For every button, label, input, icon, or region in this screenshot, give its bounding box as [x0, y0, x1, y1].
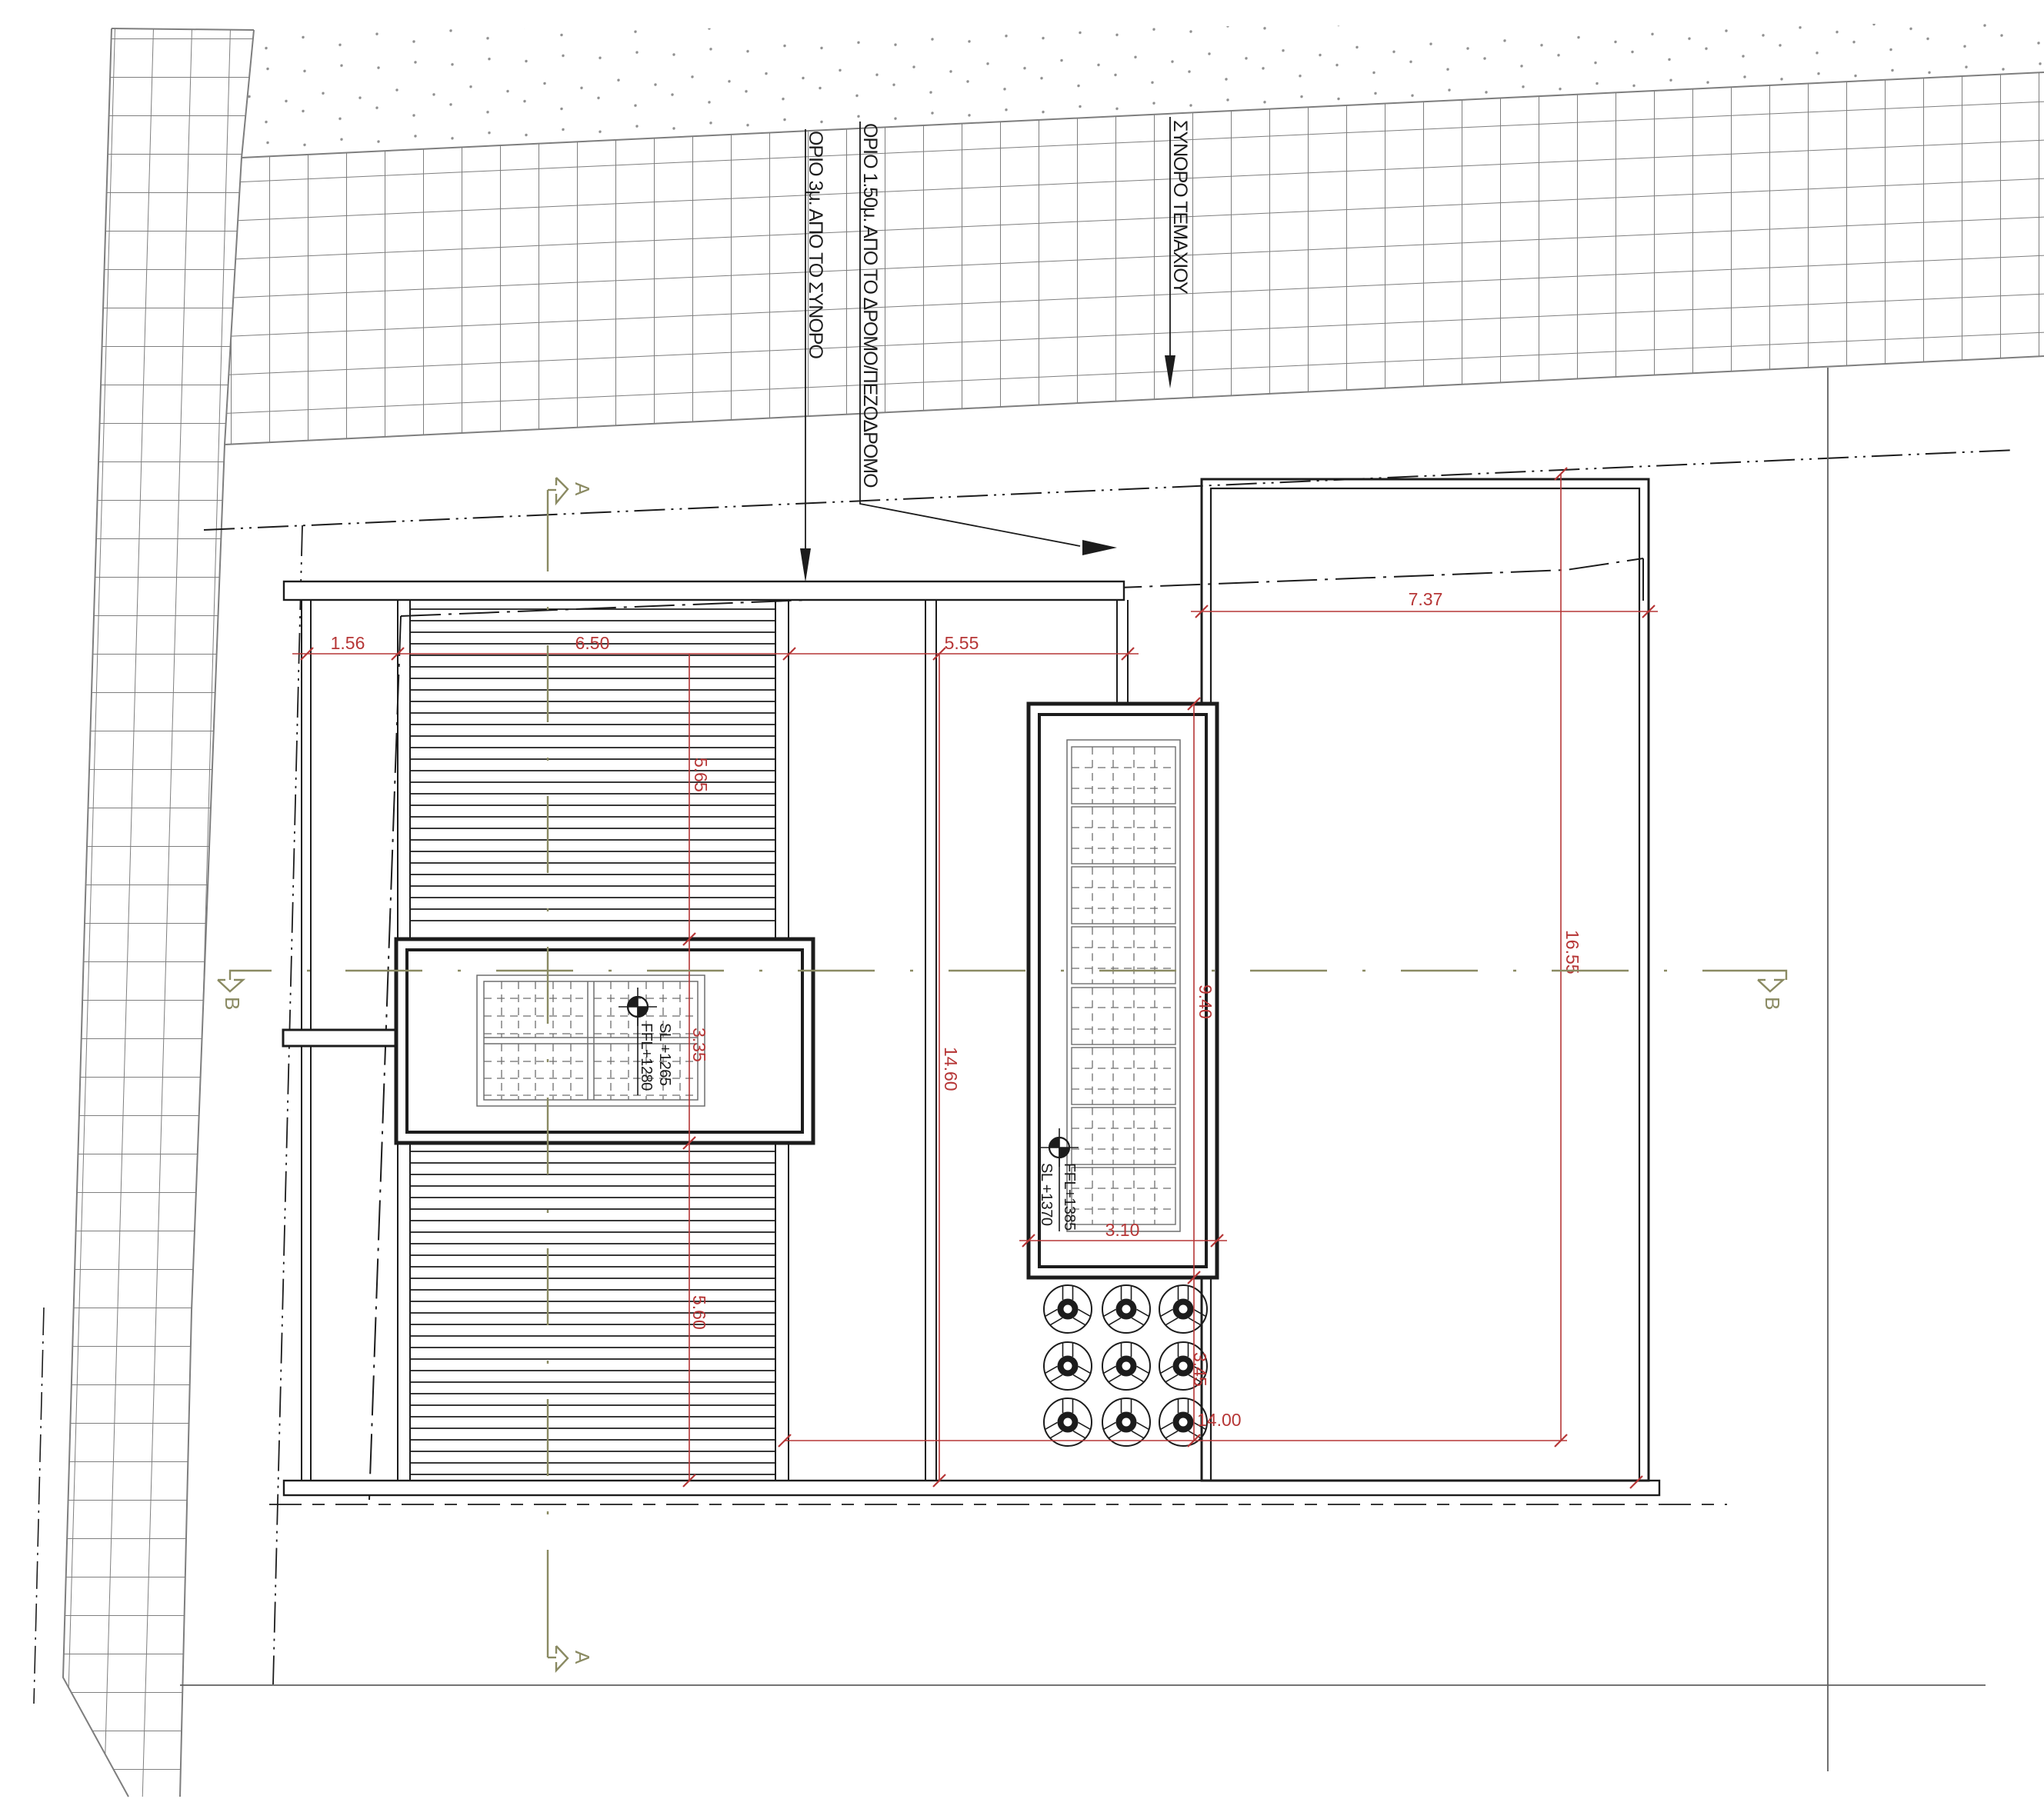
svg-text:6.50: 6.50 — [575, 633, 610, 653]
svg-text:A: A — [571, 482, 594, 496]
svg-text:ΟΡΙΟ 3μ. ΑΠΟ ΤΟ ΣΥΝΟΡΟ: ΟΡΙΟ 3μ. ΑΠΟ ΤΟ ΣΥΝΟΡΟ — [805, 131, 826, 358]
svg-text:ΟΡΙΟ 1.50μ. ΑΠΟ ΤΟ ΔΡΟΜΟ/ΠΕΖΟ: ΟΡΙΟ 1.50μ. ΑΠΟ ΤΟ ΔΡΟΜΟ/ΠΕΖΟΔΡΟΜΟ — [859, 123, 881, 488]
svg-text:5.65: 5.65 — [691, 758, 711, 792]
svg-text:FFL+1280: FFL+1280 — [638, 1023, 655, 1091]
svg-text:B: B — [1761, 997, 1784, 1010]
svg-text:16.55: 16.55 — [1562, 930, 1582, 974]
svg-text:5.55: 5.55 — [945, 633, 979, 653]
svg-text:1.56: 1.56 — [331, 633, 365, 653]
svg-text:SL +1370: SL +1370 — [1038, 1163, 1055, 1226]
svg-text:3.10: 3.10 — [1105, 1220, 1140, 1240]
svg-text:A: A — [571, 1651, 594, 1664]
svg-text:3.45: 3.45 — [1190, 1352, 1210, 1387]
svg-text:14.60: 14.60 — [941, 1047, 961, 1091]
svg-text:FFL+1385: FFL+1385 — [1061, 1163, 1078, 1231]
svg-text:SL +1265: SL +1265 — [656, 1023, 673, 1086]
svg-text:14.00: 14.00 — [1197, 1410, 1242, 1430]
svg-text:5.60: 5.60 — [689, 1295, 709, 1330]
svg-text:3.35: 3.35 — [689, 1028, 709, 1062]
svg-text:B: B — [221, 997, 244, 1010]
svg-text:7.37: 7.37 — [1409, 589, 1443, 609]
svg-text:9.40: 9.40 — [1195, 984, 1215, 1019]
svg-text:ΣΥΝΟΡΟ ΤΕΜΑΧΙΟΥ: ΣΥΝΟΡΟ ΤΕΜΑΧΙΟΥ — [1169, 120, 1191, 295]
